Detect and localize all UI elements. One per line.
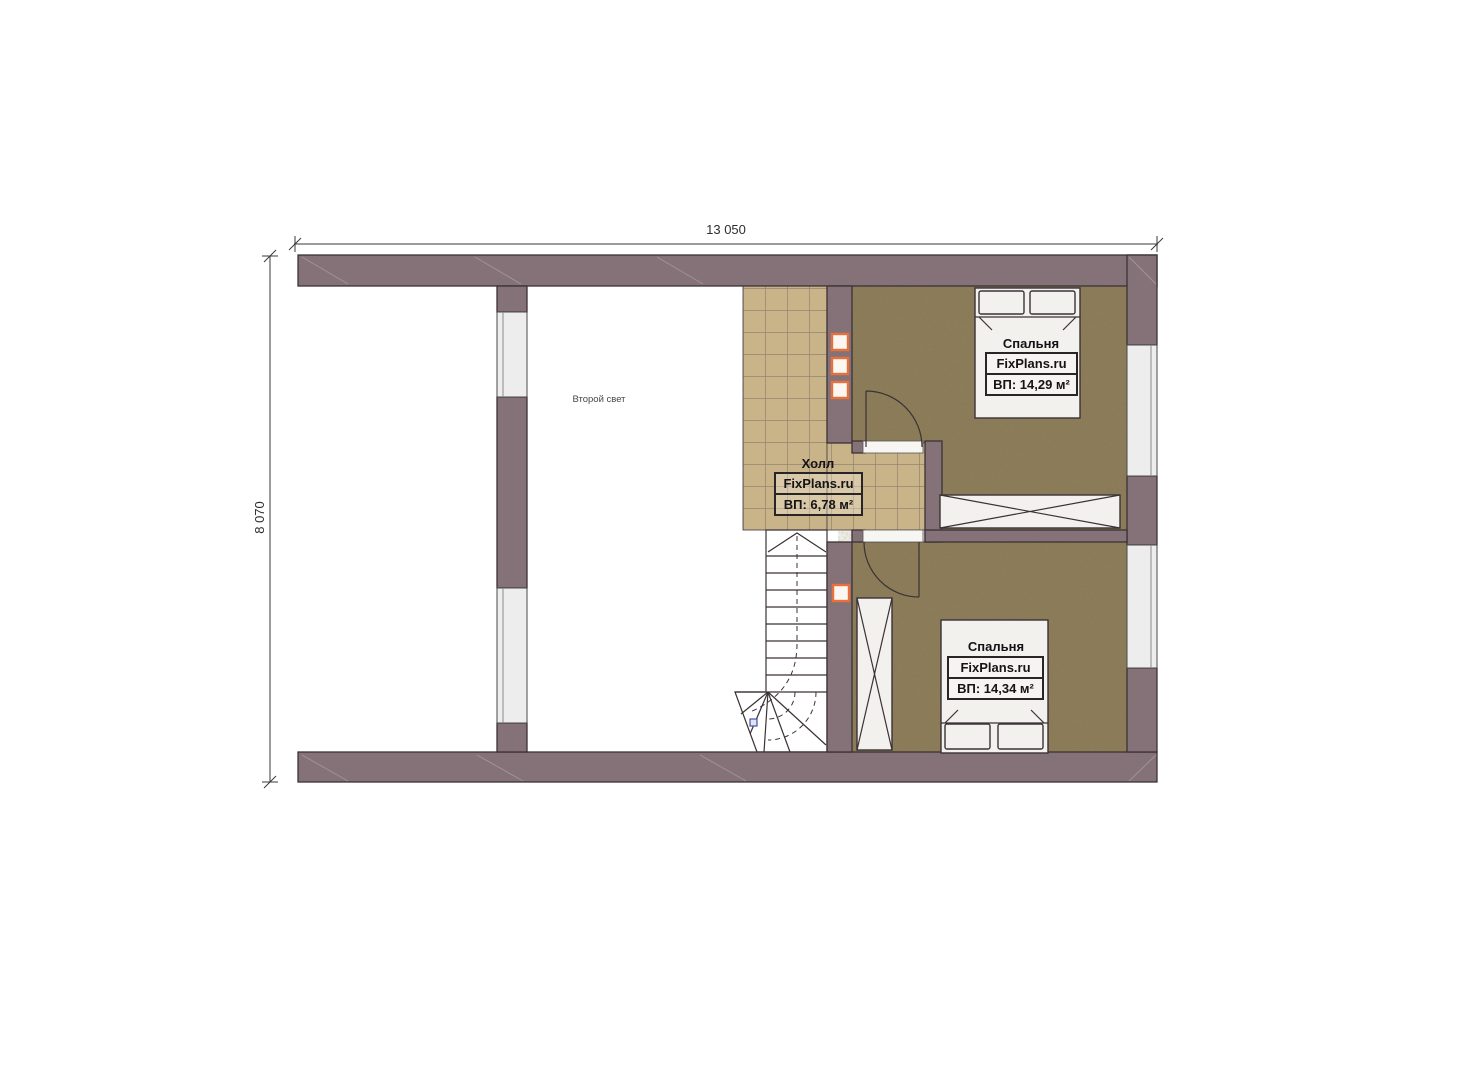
staircase <box>735 530 827 752</box>
vent-marker-icon <box>832 382 848 398</box>
room-label-second-light: Второй свет <box>572 394 625 405</box>
dimension-height-label: 8 070 <box>252 501 267 534</box>
wall-left-interior-upper <box>497 286 527 312</box>
bedroom-top-info-box: FixPlans.ru ВП: 14,29 м² <box>985 352 1078 396</box>
wall-left-interior-lower <box>497 723 527 752</box>
wall-right-upper <box>1127 255 1157 345</box>
pillow <box>979 291 1024 314</box>
stair-node-marker <box>750 719 757 726</box>
window-left-upper <box>497 312 527 397</box>
bedroom-top-area-label: ВП: 14,29 м² <box>987 373 1076 394</box>
window-right-upper <box>1127 345 1157 476</box>
window-left-lower <box>497 588 527 723</box>
door-threshold-top <box>863 441 923 453</box>
vent-marker-icon <box>832 358 848 374</box>
wall-left-interior-middle <box>497 397 527 588</box>
room-label-hall: Холл <box>802 456 835 471</box>
wall-top <box>298 255 1157 286</box>
bedroom-bottom-area-label: ВП: 14,34 м² <box>949 677 1042 698</box>
wall-bottom <box>298 752 1157 782</box>
wall-bedroom-divider <box>925 530 1127 542</box>
pillow <box>998 724 1043 749</box>
floor-plan-drawing <box>0 0 1473 1080</box>
bedroom-bottom-brand-label: FixPlans.ru <box>949 658 1042 677</box>
wardrobe-top-bedroom <box>940 495 1120 528</box>
room-label-bedroom-bottom: Спальня <box>968 639 1024 654</box>
bedroom-bottom-info-box: FixPlans.ru ВП: 14,34 м² <box>947 656 1044 700</box>
hall-info-box: FixPlans.ru ВП: 6,78 м² <box>774 472 863 516</box>
room-label-bedroom-top: Спальня <box>1003 336 1059 351</box>
vent-marker-icon <box>832 334 848 350</box>
wardrobe-bottom-bedroom <box>857 598 892 750</box>
pillow <box>1030 291 1075 314</box>
door-threshold-bottom <box>863 530 923 542</box>
hall-area-label: ВП: 6,78 м² <box>776 493 861 514</box>
bedroom-top-brand-label: FixPlans.ru <box>987 354 1076 373</box>
dimension-width-label: 13 050 <box>706 222 746 237</box>
pillow <box>945 724 990 749</box>
wall-hall-divider-lower <box>827 542 852 752</box>
window-right-lower <box>1127 545 1157 668</box>
hall-brand-label: FixPlans.ru <box>776 474 861 493</box>
vent-marker-icon <box>833 585 849 601</box>
floor-plan-canvas: 13 050 8 070 Второй свет Холл FixPlans.r… <box>0 0 1473 1080</box>
wall-right-lower <box>1127 668 1157 752</box>
wall-right-middle <box>1127 476 1157 545</box>
